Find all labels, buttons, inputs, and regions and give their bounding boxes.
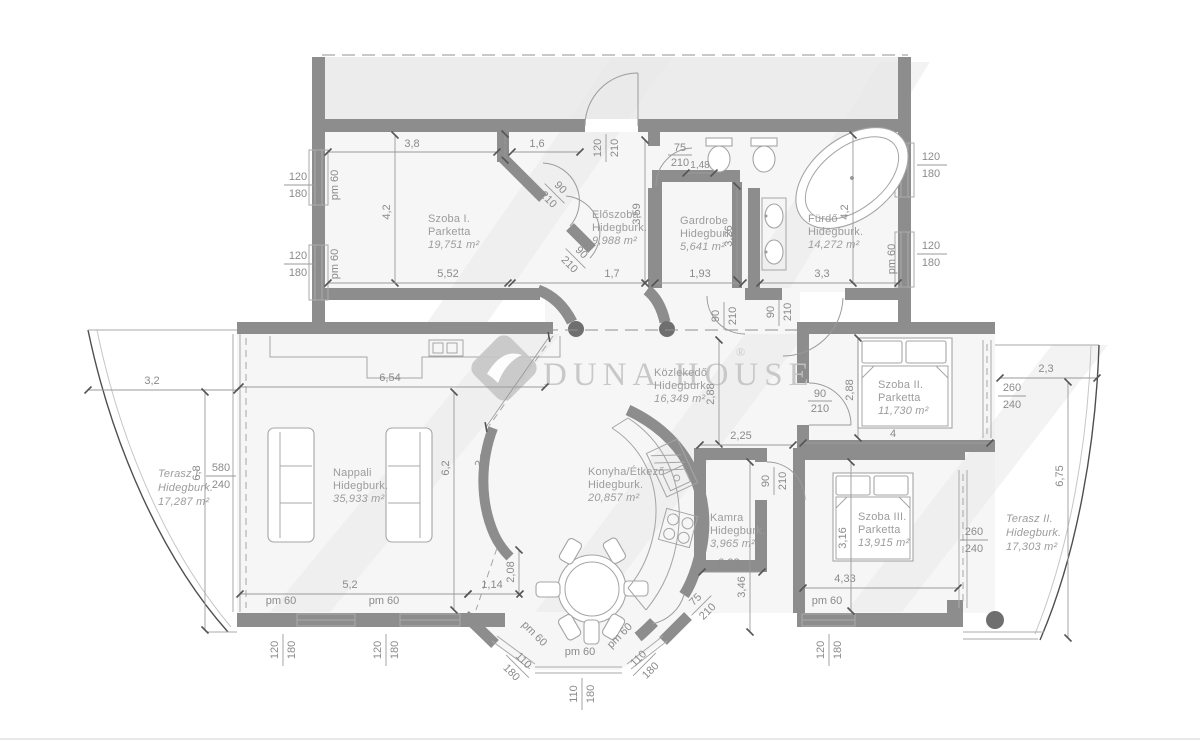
svg-text:17,303 m²: 17,303 m² bbox=[1006, 541, 1057, 553]
svg-text:Közlekedő: Közlekedő bbox=[654, 367, 707, 379]
svg-text:14,272 m²: 14,272 m² bbox=[808, 239, 859, 251]
svg-text:Kamra: Kamra bbox=[710, 512, 744, 524]
dim-label: 5,2 bbox=[342, 579, 357, 591]
svg-text:260: 260 bbox=[965, 526, 983, 538]
dim-label: 1,93 bbox=[689, 268, 710, 280]
svg-text:20,857 m²: 20,857 m² bbox=[587, 492, 639, 504]
svg-text:Hidegburk.: Hidegburk. bbox=[588, 479, 643, 491]
parapet-label: pm 60 bbox=[812, 595, 843, 607]
svg-text:Szoba I.: Szoba I. bbox=[428, 213, 470, 225]
dim-label: 1,6 bbox=[529, 138, 544, 150]
toilet-icon bbox=[706, 138, 732, 172]
dim-label: 6,2 bbox=[440, 460, 452, 475]
svg-text:180: 180 bbox=[289, 188, 307, 200]
room-label-kozlekedo: KözlekedőHidegburk.16,349 m² bbox=[654, 367, 709, 405]
svg-text:19,751 m²: 19,751 m² bbox=[428, 239, 479, 251]
svg-text:Terasz II.: Terasz II. bbox=[1006, 513, 1053, 525]
svg-text:Parketta: Parketta bbox=[878, 392, 921, 404]
svg-text:180: 180 bbox=[289, 267, 307, 279]
svg-text:580: 580 bbox=[212, 462, 230, 474]
svg-text:13,915 m²: 13,915 m² bbox=[858, 537, 909, 549]
svg-text:Hidegburk.: Hidegburk. bbox=[654, 380, 709, 392]
svg-text:110: 110 bbox=[568, 685, 580, 703]
svg-text:Parketta: Parketta bbox=[428, 226, 471, 238]
dim-label: 3,3 bbox=[814, 268, 829, 280]
dining-table-icon bbox=[558, 555, 626, 623]
svg-text:Hidegburk.: Hidegburk. bbox=[808, 226, 863, 238]
svg-text:120: 120 bbox=[289, 250, 307, 262]
dim-label: 1,14 bbox=[481, 579, 502, 591]
sofa-icon bbox=[268, 428, 314, 542]
svg-text:Hidegburk.: Hidegburk. bbox=[158, 482, 213, 494]
svg-text:Hidegburk.: Hidegburk. bbox=[1006, 527, 1061, 539]
dim-label: 6,75 bbox=[1054, 465, 1066, 486]
svg-text:210: 210 bbox=[782, 303, 794, 321]
svg-text:Nappali: Nappali bbox=[333, 467, 372, 479]
svg-text:240: 240 bbox=[1003, 399, 1021, 411]
svg-text:120: 120 bbox=[269, 641, 281, 659]
dim-label: 3,2 bbox=[144, 375, 159, 387]
floorplan-page: DUNA HOUSE ® 3,8 1 bbox=[0, 0, 1200, 742]
svg-text:11,730 m²: 11,730 m² bbox=[878, 405, 929, 417]
svg-text:120: 120 bbox=[592, 139, 604, 157]
svg-text:3,965 m²: 3,965 m² bbox=[710, 538, 755, 550]
svg-text:Konyha/Étkező: Konyha/Étkező bbox=[588, 465, 665, 478]
svg-text:240: 240 bbox=[965, 543, 983, 555]
dim-label: 0,81 bbox=[500, 138, 511, 158]
svg-text:120: 120 bbox=[289, 171, 307, 183]
svg-text:180: 180 bbox=[832, 641, 844, 659]
svg-text:90: 90 bbox=[765, 306, 777, 318]
toilet-icon bbox=[751, 138, 777, 172]
dim-label: 4,2 bbox=[839, 204, 851, 219]
terrace-column bbox=[986, 611, 1004, 629]
svg-text:180: 180 bbox=[922, 168, 940, 180]
parapet-label: pm 60 bbox=[565, 646, 596, 658]
svg-text:120: 120 bbox=[922, 151, 940, 163]
svg-text:35,933 m²: 35,933 m² bbox=[333, 493, 384, 505]
svg-text:120: 120 bbox=[922, 240, 940, 252]
dim-label: 2,25 bbox=[730, 430, 751, 442]
svg-text:90: 90 bbox=[760, 475, 772, 487]
svg-text:Hidegburk.: Hidegburk. bbox=[333, 480, 388, 492]
svg-text:Terasz I.: Terasz I. bbox=[158, 468, 202, 480]
parapet-label: pm 60 bbox=[369, 595, 400, 607]
svg-text:Előszoba: Előszoba bbox=[592, 209, 640, 221]
dim-label: 1,48 bbox=[690, 160, 710, 171]
floor-plan: DUNA HOUSE ® 3,8 1 bbox=[0, 0, 1200, 742]
dim-label: 4 bbox=[890, 428, 896, 440]
svg-text:17,287 m²: 17,287 m² bbox=[158, 496, 209, 508]
dim-label: 4,33 bbox=[834, 573, 855, 585]
svg-text:16,349 m²: 16,349 m² bbox=[654, 393, 705, 405]
svg-text:120: 120 bbox=[372, 641, 384, 659]
dim-label: 3,16 bbox=[837, 527, 849, 548]
svg-text:120: 120 bbox=[815, 641, 827, 659]
dim-label: 0,92 bbox=[718, 557, 739, 569]
svg-text:210: 210 bbox=[609, 139, 621, 157]
dim-label: 2,88 bbox=[844, 379, 856, 400]
svg-text:210: 210 bbox=[671, 157, 689, 169]
svg-text:180: 180 bbox=[389, 641, 401, 659]
svg-text:260: 260 bbox=[1003, 382, 1021, 394]
svg-text:5,641 m²: 5,641 m² bbox=[680, 241, 725, 253]
svg-text:180: 180 bbox=[585, 685, 597, 703]
svg-text:180: 180 bbox=[286, 641, 298, 659]
parapet-label: pm 60 bbox=[329, 170, 341, 201]
svg-text:210: 210 bbox=[811, 403, 829, 415]
svg-text:210: 210 bbox=[777, 472, 789, 490]
svg-text:Fürdő: Fürdő bbox=[808, 213, 838, 225]
svg-text:240: 240 bbox=[212, 479, 230, 491]
svg-text:90: 90 bbox=[814, 388, 826, 400]
svg-text:90: 90 bbox=[710, 310, 722, 322]
parapet-label: pm 60 bbox=[266, 595, 297, 607]
dim-label: 3,8 bbox=[404, 138, 419, 150]
dim-label: 4,2 bbox=[381, 204, 393, 219]
svg-text:Parketta: Parketta bbox=[858, 524, 901, 536]
column bbox=[659, 321, 675, 337]
svg-text:210: 210 bbox=[727, 307, 739, 325]
dim-label: 5,52 bbox=[437, 268, 458, 280]
dim-label: 2,08 bbox=[505, 561, 517, 582]
svg-text:180: 180 bbox=[922, 257, 940, 269]
svg-text:75: 75 bbox=[674, 142, 686, 154]
svg-text:Szoba II.: Szoba II. bbox=[878, 379, 923, 391]
svg-text:Hidegburk.: Hidegburk. bbox=[680, 228, 735, 240]
dim-label: 2,3 bbox=[1038, 363, 1053, 375]
dim-label: 6,54 bbox=[379, 372, 400, 384]
column bbox=[568, 321, 584, 337]
dim-label: 1,7 bbox=[604, 268, 619, 280]
svg-text:9,988 m²: 9,988 m² bbox=[592, 235, 637, 247]
registered-mark: ® bbox=[736, 345, 745, 359]
svg-text:Gardrobe: Gardrobe bbox=[680, 215, 728, 227]
parapet-label: pm 60 bbox=[886, 244, 898, 275]
svg-text:Hidegburk.: Hidegburk. bbox=[710, 525, 765, 537]
svg-text:Szoba III.: Szoba III. bbox=[858, 511, 906, 523]
svg-text:Hidegburk.: Hidegburk. bbox=[592, 222, 647, 234]
sofa-icon bbox=[386, 428, 432, 542]
parapet-label: pm 60 bbox=[329, 249, 341, 280]
dim-label: 3,46 bbox=[736, 576, 748, 597]
